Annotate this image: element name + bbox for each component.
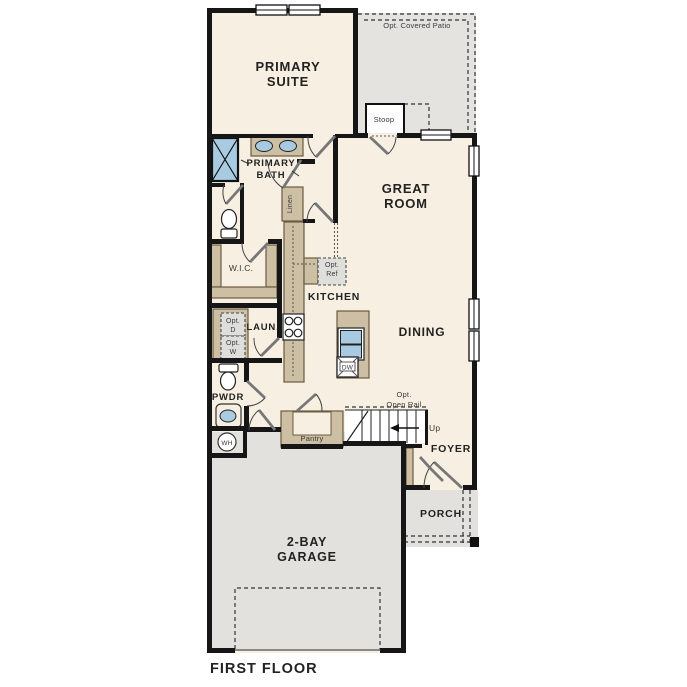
dining-window-lower: [469, 331, 479, 361]
kitchen-label: KITCHEN: [308, 291, 360, 303]
water-heater: WH: [218, 433, 236, 451]
floor-plan: WH DW: [0, 0, 687, 687]
porch-post: [470, 537, 479, 547]
stoop-label: Stoop: [374, 115, 395, 124]
plan-title: FIRST FLOOR: [210, 661, 318, 677]
primary-suite-label-line1: PRIMARY: [255, 59, 320, 74]
opt-open-rail-label-line2: Open Rail: [386, 400, 421, 409]
pantry-label: Pantry: [301, 434, 324, 443]
pantry-floor: [293, 412, 331, 435]
powder-label: PWDR: [212, 392, 244, 403]
vanity-sink-right: [280, 141, 297, 152]
foyer-closet-shelf: [406, 448, 413, 486]
opt-dryer-label-line2: D: [230, 327, 235, 334]
dining-label: DINING: [399, 325, 446, 339]
garage-label-line2: GARAGE: [277, 550, 337, 564]
primary-bath-label-line1: PRIMARY: [246, 158, 295, 169]
opt-washer-label-line2: W: [230, 349, 237, 356]
range: [283, 314, 304, 340]
kitchen-counter-top: [304, 258, 318, 284]
opt-ref-label-line1: Opt.: [325, 262, 339, 269]
primary-bath-label-line2: BATH: [257, 170, 286, 181]
wic-label: W.I.C.: [229, 263, 253, 273]
opt-ref-label-line2: Ref: [326, 271, 338, 278]
kitchen-counter-left: [284, 222, 304, 382]
wic-shelf-right: [266, 245, 277, 287]
vanity-sink-left: [256, 141, 273, 152]
great-room-label-line2: ROOM: [384, 196, 428, 211]
foyer-label: FOYER: [431, 443, 471, 455]
shower: [212, 138, 238, 181]
great-room-top-window: [421, 130, 451, 140]
opt-open-rail-label-line1: Opt.: [397, 390, 412, 399]
island-sink: [338, 328, 364, 360]
primary-suite-window-left: [256, 5, 287, 15]
dining-window-upper: [469, 299, 479, 329]
staircase: [345, 407, 428, 443]
powder-sink: [216, 404, 241, 428]
opt-washer-label-line1: Opt.: [226, 340, 240, 347]
floor-plan-page: WH DW: [0, 0, 687, 687]
primary-suite-label-line2: SUITE: [267, 74, 309, 89]
primary-suite-window-right: [289, 5, 320, 15]
linen-label: Linen: [287, 195, 294, 213]
laundry-label: LAUN.: [246, 322, 279, 333]
dishwasher-label: DW: [342, 365, 354, 372]
up-label: Up: [429, 423, 440, 433]
bath-toilet: [221, 210, 237, 239]
great-room-label-line1: GREAT: [382, 181, 431, 196]
water-heater-label: WH: [221, 440, 232, 447]
porch-label: PORCH: [420, 508, 462, 520]
wic-shelf-bottom: [210, 287, 277, 298]
great-room-side-window: [469, 146, 479, 176]
dishwasher: DW: [337, 357, 358, 377]
opt-dryer-label-line1: Opt.: [226, 318, 240, 325]
garage-label-line1: 2-BAY: [287, 535, 327, 549]
opt-covered-patio-label: Opt. Covered Patio: [383, 21, 450, 30]
